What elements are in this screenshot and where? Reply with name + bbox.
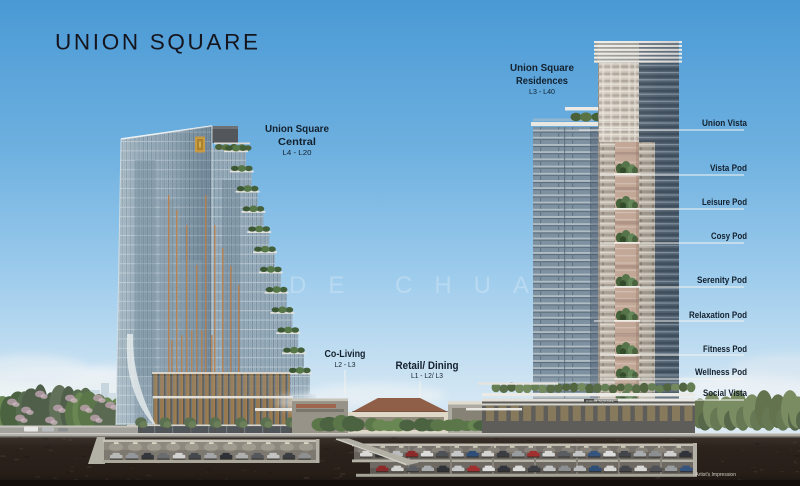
svg-text:L1 - L2/ L3: L1 - L2/ L3 [411,371,443,380]
svg-text:Union Square: Union Square [510,62,574,74]
svg-text:Union Vista: Union Vista [702,118,748,129]
svg-text:Wellness Pod: Wellness Pod [695,367,747,378]
svg-text:Artist's Impression: Artist's Impression [695,472,736,478]
svg-text:ADE CHUA: ADE CHUA [251,272,551,299]
svg-text:Relaxation Pod: Relaxation Pod [689,310,747,321]
svg-text:Co-Living: Co-Living [325,348,366,360]
svg-text:L4 - L20: L4 - L20 [283,148,312,157]
svg-text:Leisure Pod: Leisure Pod [702,197,747,208]
svg-text:UNION SQUARE: UNION SQUARE [55,30,258,55]
svg-text:Vista Pod: Vista Pod [710,163,747,174]
svg-text:L3 - L40: L3 - L40 [529,87,555,96]
svg-text:Central: Central [278,136,316,148]
svg-text:Cosy Pod: Cosy Pod [711,231,747,242]
svg-text:Union Square: Union Square [265,123,329,135]
svg-text:Residences: Residences [516,75,568,87]
svg-text:Social Vista: Social Vista [703,388,748,399]
svg-text:Fitness Pod: Fitness Pod [703,344,747,355]
svg-text:L2 - L3: L2 - L3 [335,360,356,369]
svg-text:Serenity Pod: Serenity Pod [697,275,747,286]
